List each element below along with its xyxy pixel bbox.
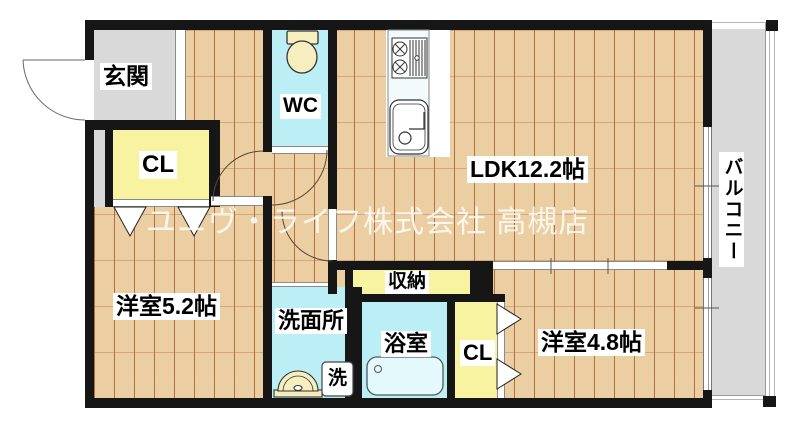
balcony-corner-post xyxy=(766,20,778,31)
wall-top xyxy=(85,20,712,30)
label-wc: WC xyxy=(280,94,321,119)
wall-right-lower xyxy=(703,390,712,408)
pipe-space xyxy=(94,122,105,207)
balcony-rail-line xyxy=(765,22,766,399)
wall-left-lower xyxy=(85,120,94,408)
label-wr2: 洋室4.8帖 xyxy=(538,329,645,356)
label-genkan: 玄関 xyxy=(100,63,152,90)
room-wc xyxy=(272,30,328,146)
wall-hall-ldk-lower xyxy=(328,260,337,294)
label-closet1: CL xyxy=(139,151,177,179)
balcony-top-line xyxy=(712,22,766,23)
wall-bottom xyxy=(85,398,712,408)
balcony-window-wr2 xyxy=(703,278,712,390)
wall-bath-right xyxy=(447,294,455,398)
label-balcony: バルコニー xyxy=(719,152,744,267)
sliding-door-ldk-wr2 xyxy=(493,261,667,270)
wall-wc-left xyxy=(263,20,272,152)
label-closet2: CL xyxy=(460,340,495,366)
label-wr1: 洋室5.2帖 xyxy=(113,293,220,320)
wall-bath-top xyxy=(345,294,505,302)
wall-closet1-right xyxy=(209,120,220,207)
wall-wc-right xyxy=(328,20,337,157)
genkan-step xyxy=(175,30,186,120)
wall-right-upper xyxy=(703,20,712,127)
wall-right-middle xyxy=(703,258,712,278)
senmenjo-opening xyxy=(272,282,328,287)
watermark-text: ユニヴ・ライフ株式会社 高槻店 xyxy=(146,197,589,241)
floor-plan: 玄関 WC CL LDK12.2帖 洋室5.2帖 収納 洗面所 浴室 洗 CL … xyxy=(0,0,800,428)
label-laundry: 洗 xyxy=(327,369,348,390)
closet2-door-track xyxy=(497,302,505,398)
label-storage: 収納 xyxy=(385,271,429,294)
wall-closet1-left xyxy=(105,120,113,207)
label-bathroom: 浴室 xyxy=(381,331,431,357)
kitchen-counter-area xyxy=(386,30,450,157)
wall-storage-right xyxy=(470,264,493,296)
balcony-rail-line xyxy=(769,22,770,399)
wall-left-upper xyxy=(85,20,94,60)
balcony-corner-post xyxy=(763,396,776,407)
entrance-door-swing-icon xyxy=(23,60,85,120)
wc-door-opening xyxy=(272,146,328,154)
balcony-outer-line xyxy=(774,21,775,403)
balcony-window-ldk xyxy=(703,127,712,258)
label-senmenjo: 洗面所 xyxy=(275,308,347,334)
balcony-bottom-line xyxy=(712,395,765,396)
label-ldk: LDK12.2帖 xyxy=(467,156,588,183)
